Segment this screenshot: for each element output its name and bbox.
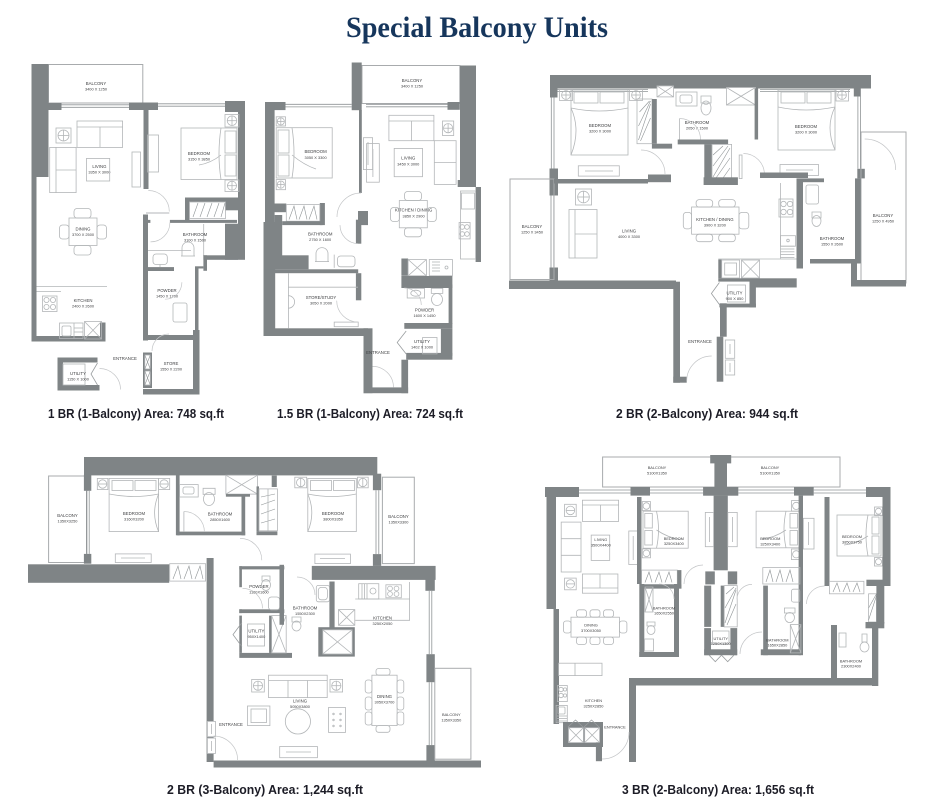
svg-text:2 BR (2-Balcony) Area: 944 sq.: 2 BR (2-Balcony) Area: 944 sq.ft [616,407,799,421]
svg-text:UTILITY: UTILITY [70,371,86,376]
svg-text:BALCONY: BALCONY [402,78,423,83]
svg-text:DINING: DINING [75,227,91,232]
svg-text:BEDROOM: BEDROOM [304,149,327,154]
svg-text:2300X2400: 2300X2400 [841,664,862,669]
svg-text:5100X1350: 5100X1350 [647,471,668,476]
svg-text:3250X3400: 3250X3400 [760,541,781,546]
svg-text:BEDROOM: BEDROOM [188,151,211,156]
svg-text:3850 X 2900: 3850 X 2900 [403,214,426,219]
svg-text:BEDROOM: BEDROOM [760,536,780,541]
svg-text:2 BR (3-Balcony) Area: 1,244 s: 2 BR (3-Balcony) Area: 1,244 sq.ft [167,783,364,797]
svg-text:ENTRANCE: ENTRANCE [366,350,390,355]
svg-text:1550 X 2200: 1550 X 2200 [160,367,183,372]
svg-text:KITCHEN: KITCHEN [373,616,392,621]
svg-text:3050X3700: 3050X3700 [375,700,396,705]
svg-text:3050 X 3300: 3050 X 3300 [305,155,328,160]
svg-text:4000 X 3300: 4000 X 3300 [618,234,641,239]
svg-text:1350X3250: 1350X3250 [58,519,79,524]
svg-text:5100X1350: 5100X1350 [760,471,781,476]
svg-text:3500X4400: 3500X4400 [591,543,612,548]
svg-text:1550X2300: 1550X2300 [295,611,316,616]
svg-text:1600 X 1450: 1600 X 1450 [413,313,436,318]
svg-text:DINING: DINING [377,694,393,699]
svg-text:1350X3300: 1350X3300 [389,520,410,525]
svg-text:1250 X 3450: 1250 X 3450 [521,230,544,235]
svg-text:2850X1600: 2850X1600 [210,517,231,522]
svg-text:1350X3350: 1350X3350 [441,718,462,723]
svg-text:3900 X 3200: 3900 X 3200 [704,223,727,228]
svg-text:3250X2850: 3250X2850 [584,704,605,709]
svg-text:LIVING: LIVING [293,699,308,704]
svg-text:BATHROOM: BATHROOM [183,232,208,237]
svg-text:BEDROOM: BEDROOM [795,124,818,129]
svg-text:1.5 BR (1-Balcony) Area: 724 s: 1.5 BR (1-Balcony) Area: 724 sq.ft [277,407,464,421]
svg-text:BALCONY: BALCONY [761,465,780,470]
svg-text:POWDER: POWDER [415,308,434,313]
svg-text:KITCHEN: KITCHEN [74,298,93,303]
svg-text:ENTRANCE: ENTRANCE [604,725,626,730]
svg-text:5050X3800: 5050X3800 [290,704,311,709]
svg-text:UTILITY: UTILITY [727,291,743,296]
svg-text:3800X3350: 3800X3350 [323,517,344,522]
svg-text:3450 X 3000: 3450 X 3000 [397,161,420,166]
svg-text:DINING: DINING [584,623,598,628]
svg-text:1402 X 1000: 1402 X 1000 [411,345,434,350]
svg-text:950X1400: 950X1400 [248,634,267,639]
svg-text:3200 X 3000: 3200 X 3000 [795,130,818,135]
svg-text:3250X3400: 3250X3400 [664,541,685,546]
svg-text:Special Balcony Units: Special Balcony Units [346,11,608,44]
svg-text:3 BR (2-Balcony) Area: 1,656 s: 3 BR (2-Balcony) Area: 1,656 sq.ft [622,783,815,797]
svg-text:3150 X 3850: 3150 X 3850 [188,157,211,162]
svg-text:KITCHEN / DINING: KITCHEN / DINING [696,217,734,222]
svg-text:BALCONY: BALCONY [648,465,667,470]
svg-text:BEDROOM: BEDROOM [589,123,612,128]
svg-text:BEDROOM: BEDROOM [123,511,146,516]
svg-text:POWDER: POWDER [157,288,176,293]
svg-text:3350 X 3000: 3350 X 3000 [88,170,111,175]
svg-text:1250X1300: 1250X1300 [711,641,732,646]
svg-text:900 X 850: 900 X 850 [726,296,745,301]
svg-text:BALCONY: BALCONY [873,213,894,218]
svg-text:BALCONY: BALCONY [86,81,107,86]
svg-text:BATHROOM: BATHROOM [308,231,333,236]
svg-text:ENTRANCE: ENTRANCE [688,339,712,344]
svg-text:UTILITY: UTILITY [414,339,430,344]
svg-text:STORE: STORE [164,361,179,366]
svg-text:LIVING: LIVING [622,229,637,234]
svg-text:POWDER: POWDER [249,584,268,589]
svg-text:2400 X 2600: 2400 X 2600 [72,304,95,309]
svg-text:1150 X 1000: 1150 X 1000 [67,377,90,382]
svg-text:1650X2550: 1650X2550 [654,611,675,616]
svg-text:KITCHEN: KITCHEN [585,698,602,703]
svg-text:BEDROOM: BEDROOM [842,534,862,539]
svg-text:ENTRANCE: ENTRANCE [113,356,137,361]
svg-text:ENTRANCE: ENTRANCE [219,722,243,727]
svg-text:BALCONY: BALCONY [57,513,78,518]
svg-text:BALCONY: BALCONY [522,224,543,229]
svg-text:3700X3050: 3700X3050 [581,628,602,633]
svg-text:3050 X 2000: 3050 X 2000 [310,301,333,306]
svg-text:3400 X 1250: 3400 X 1250 [85,87,108,92]
svg-text:STORE/STUDY: STORE/STUDY [306,295,337,300]
svg-text:3700 X 2500: 3700 X 2500 [72,232,95,237]
svg-text:LIVING: LIVING [594,537,607,542]
svg-text:3160X3200: 3160X3200 [124,517,145,522]
svg-text:BALCONY: BALCONY [388,514,409,519]
svg-text:BATHROOM: BATHROOM [820,236,845,241]
svg-text:UTILITY: UTILITY [248,628,264,633]
svg-text:2750 X 1600: 2750 X 1600 [309,237,332,242]
svg-text:1650X2850: 1650X2850 [767,643,788,648]
svg-text:BALCONY: BALCONY [442,712,461,717]
svg-text:LIVING: LIVING [401,156,416,161]
svg-text:1250 X 4950: 1250 X 4950 [872,219,895,224]
svg-text:BATHROOM: BATHROOM [293,606,318,611]
svg-text:3250X2050: 3250X2050 [373,621,394,626]
svg-text:LIVING: LIVING [92,164,107,169]
svg-text:3400 X 1250: 3400 X 1250 [401,84,424,89]
svg-text:3200 X 3000: 3200 X 3000 [589,129,612,134]
svg-text:BATHROOM: BATHROOM [208,512,233,517]
svg-text:3850X3750: 3850X3750 [842,540,863,545]
svg-text:BEDROOM: BEDROOM [322,511,345,516]
svg-text:1550 X 2600: 1550 X 2600 [821,242,844,247]
svg-text:1 BR (1-Balcony) Area: 748 sq.: 1 BR (1-Balcony) Area: 748 sq.ft [48,407,225,421]
